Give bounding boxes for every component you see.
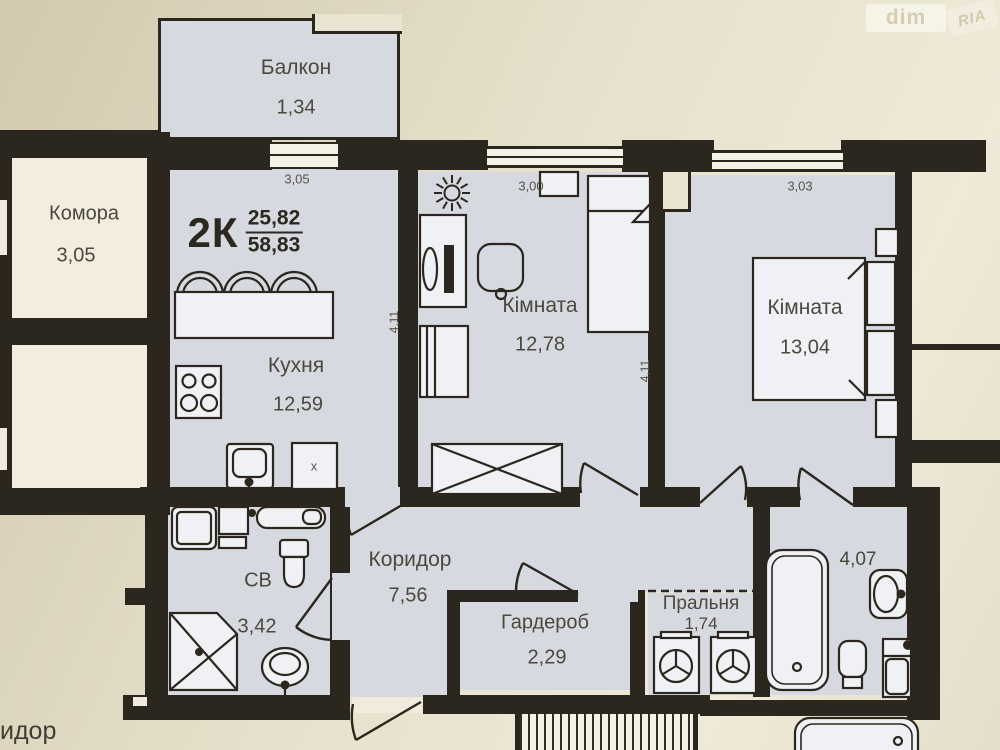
crossed-cabinet (432, 444, 562, 494)
nightstand (876, 229, 898, 256)
towel-dryer (257, 507, 325, 528)
wardrobe-label: Гардероб (501, 612, 589, 635)
washing-machine (654, 632, 699, 693)
apartment-areas: 25,82 58,83 (246, 207, 303, 258)
corridor-label: Коридор (369, 548, 452, 572)
nightstand (540, 172, 578, 196)
fixtures-layer (0, 0, 1000, 750)
storage-label: Комора (49, 203, 119, 226)
bathroom-sv-label: СВ (244, 570, 272, 593)
cabinet (219, 507, 256, 548)
balcony-area: 1,34 (277, 97, 316, 120)
toilet (280, 540, 308, 587)
desk-with-computer (420, 215, 466, 307)
bathroom-sink (262, 648, 308, 697)
double-bed (753, 258, 865, 400)
room1-label: Кімната (502, 294, 577, 318)
single-bed (588, 176, 650, 332)
chair (478, 244, 523, 299)
bathroom2-sink (870, 570, 907, 618)
balcony-label: Балкон (261, 56, 331, 80)
boiler-cabinet (883, 639, 913, 697)
neighbor-bathtub (795, 718, 918, 750)
appliance-x-label: x (311, 459, 318, 474)
laundry-area: 1,74 (684, 614, 717, 634)
building-corridor-label: идор (0, 717, 56, 746)
floorplan-canvas: Балкон 1,34 Комора 3,05 2К 25,82 58,83 3… (0, 0, 1000, 750)
dimension-kitchen-width: 3,05 (284, 172, 309, 187)
dim-watermark: dim (866, 4, 946, 32)
room2-area: 13,04 (780, 337, 830, 360)
nightstand (876, 400, 898, 437)
dimension-room1-depth: 4,11 (638, 360, 652, 382)
stove (176, 366, 221, 418)
shower-cabin (170, 613, 237, 690)
dimension-kitchen-depth: 4,11 (387, 311, 401, 333)
washing-machine (172, 507, 216, 549)
apartment-type: 2К (188, 209, 239, 257)
laundry-label: Пральня (663, 593, 740, 615)
room1-area: 12,78 (515, 334, 565, 357)
plant-icon (434, 175, 470, 211)
kitchen-label: Кухня (268, 354, 324, 378)
room2-label: Кімната (767, 296, 842, 320)
kitchen-sink (227, 444, 273, 496)
living-area: 25,82 (246, 207, 303, 234)
bathroom2-area: 4,07 (840, 549, 877, 571)
dimension-room1-width: 3,00 (518, 179, 543, 194)
bed-headboard (867, 262, 895, 395)
bathtub (766, 550, 828, 690)
washing-machine (711, 632, 756, 693)
total-area: 58,83 (248, 234, 301, 258)
bathroom-sv-area: 3,42 (238, 616, 277, 639)
wardrobe-cabinet (420, 326, 468, 397)
kitchen-counter (175, 272, 333, 338)
dimension-room2-width: 3,03 (787, 179, 812, 194)
kitchen-area: 12,59 (273, 394, 323, 417)
storage-area: 3,05 (57, 245, 96, 268)
corridor-area: 7,56 (389, 585, 428, 608)
toilet (839, 641, 866, 688)
wardrobe-area: 2,29 (528, 647, 567, 670)
